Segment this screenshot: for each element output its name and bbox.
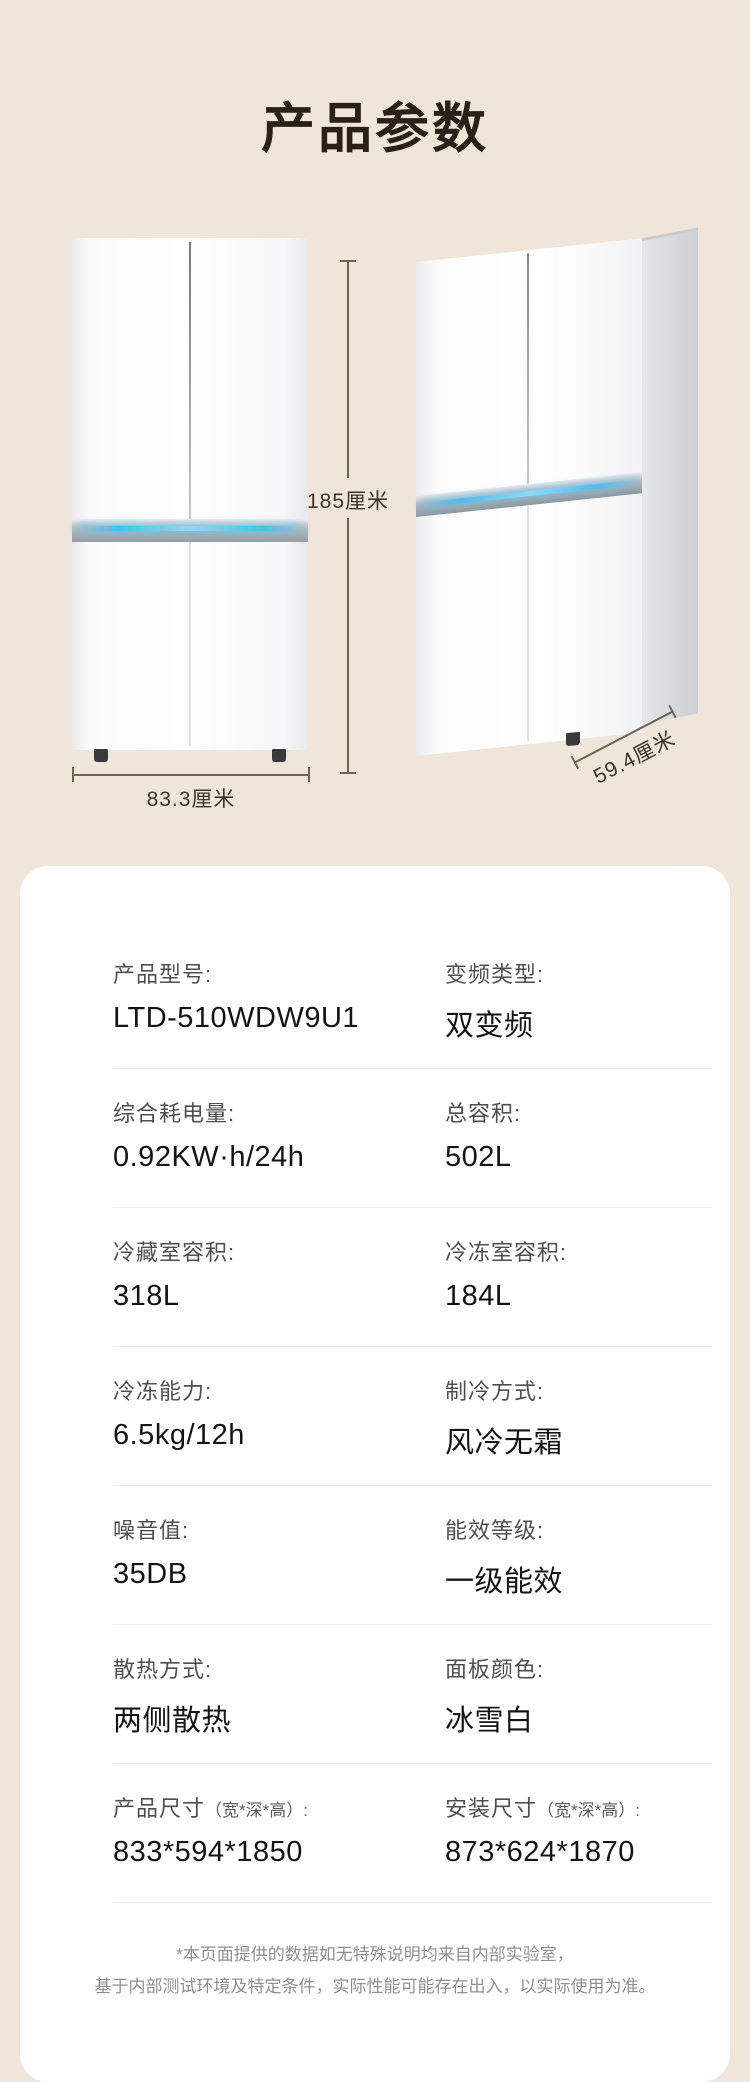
fridge-front-face bbox=[416, 238, 642, 756]
param-value: 35DB bbox=[113, 1558, 189, 1591]
param-label-text: 冷藏室容积: bbox=[113, 1240, 235, 1265]
parameter-rows: 产品型号: LTD-510WDW9U1 变频类型: 双变频 综合耗电量: 0.9… bbox=[20, 930, 730, 1903]
param-label: 产品型号: bbox=[113, 957, 359, 989]
param-label: 产品尺寸（宽*深*高）: bbox=[113, 1791, 308, 1823]
param-value: 6.5kg/12h bbox=[113, 1419, 245, 1452]
height-dimension-line bbox=[347, 262, 349, 478]
fridge-dimension-scene: 185厘米 83.3厘米 59.4厘米 bbox=[0, 0, 750, 830]
fridge-blue-glow bbox=[77, 526, 304, 531]
param-cell: 冷冻能力: 6.5kg/12h bbox=[113, 1374, 245, 1452]
param-row-capacity: 冷藏室容积: 318L 冷冻室容积: 184L bbox=[20, 1208, 730, 1347]
height-dimension-line bbox=[340, 772, 356, 774]
parameters-card: 产品型号: LTD-510WDW9U1 变频类型: 双变频 综合耗电量: 0.9… bbox=[20, 866, 730, 2082]
fridge-door-gap bbox=[527, 253, 529, 484]
param-cell: 能效等级: 一级能效 bbox=[445, 1513, 563, 1600]
width-dimension-line bbox=[72, 774, 310, 776]
fridge-foot bbox=[272, 749, 286, 762]
param-label-sub: （宽*深*高）: bbox=[537, 1801, 640, 1820]
param-cell: 综合耗电量: 0.92KW·h/24h bbox=[113, 1096, 304, 1174]
fridge-side-image bbox=[416, 232, 698, 762]
disclaimer-line-1: *本页面提供的数据如无特殊说明均来自内部实验室， bbox=[20, 1939, 730, 1971]
param-label-text: 冷冻能力: bbox=[113, 1379, 212, 1404]
param-label-text: 变频类型: bbox=[445, 962, 544, 987]
product-parameters-page: 产品参数 185厘米 bbox=[0, 0, 750, 2082]
param-row-model: 产品型号: LTD-510WDW9U1 变频类型: 双变频 bbox=[20, 930, 730, 1069]
param-cell: 安装尺寸（宽*深*高）: 873*624*1870 bbox=[445, 1791, 640, 1869]
param-value: 冰雪白 bbox=[445, 1697, 544, 1739]
height-dimension-line bbox=[347, 518, 349, 772]
param-value: 风冷无霜 bbox=[445, 1419, 563, 1461]
param-label: 噪音值: bbox=[113, 1513, 189, 1545]
param-label: 变频类型: bbox=[445, 957, 544, 989]
param-label: 安装尺寸（宽*深*高）: bbox=[445, 1791, 640, 1823]
param-cell: 总容积: 502L bbox=[445, 1096, 521, 1174]
param-value: 833*594*1850 bbox=[113, 1836, 308, 1869]
param-value: 184L bbox=[445, 1280, 567, 1313]
param-value: LTD-510WDW9U1 bbox=[113, 1002, 359, 1035]
param-label-text: 安装尺寸 bbox=[445, 1796, 537, 1821]
param-label-text: 产品型号: bbox=[113, 962, 212, 987]
param-cell: 面板颜色: 冰雪白 bbox=[445, 1652, 544, 1739]
width-dimension-line bbox=[308, 767, 310, 782]
param-label: 综合耗电量: bbox=[113, 1096, 304, 1128]
param-label: 冷冻室容积: bbox=[445, 1235, 567, 1267]
param-label: 冷藏室容积: bbox=[113, 1235, 235, 1267]
param-label: 制冷方式: bbox=[445, 1374, 563, 1406]
param-row-size: 产品尺寸（宽*深*高）: 833*594*1850 安装尺寸（宽*深*高）: 8… bbox=[20, 1764, 730, 1903]
fridge-door-gap bbox=[189, 242, 191, 519]
param-cell: 变频类型: 双变频 bbox=[445, 957, 544, 1044]
fridge-door-gap bbox=[527, 505, 529, 741]
width-dimension-label: 83.3厘米 bbox=[72, 783, 310, 813]
fridge-light-band bbox=[416, 472, 642, 517]
height-dimension-label: 185厘米 bbox=[288, 485, 408, 515]
fridge-light-band bbox=[72, 519, 308, 542]
fridge-front-image bbox=[72, 238, 308, 750]
param-row-power: 综合耗电量: 0.92KW·h/24h 总容积: 502L bbox=[20, 1069, 730, 1208]
param-row-noise: 噪音值: 35DB 能效等级: 一级能效 bbox=[20, 1486, 730, 1625]
param-value: 0.92KW·h/24h bbox=[113, 1141, 304, 1174]
param-label: 能效等级: bbox=[445, 1513, 563, 1545]
param-label-text: 能效等级: bbox=[445, 1518, 544, 1543]
fridge-foot bbox=[94, 749, 108, 762]
disclaimer-line-2: 基于内部测试环境及特定条件，实际性能可能存在出入，以实际使用为准。 bbox=[20, 1971, 730, 2003]
fridge-foot bbox=[566, 732, 580, 746]
param-label-text: 散热方式: bbox=[113, 1657, 212, 1682]
param-value: 873*624*1870 bbox=[445, 1836, 640, 1869]
disclaimer-text: *本页面提供的数据如无特殊说明均来自内部实验室， 基于内部测试环境及特定条件，实… bbox=[20, 1939, 730, 2003]
param-cell: 冷冻室容积: 184L bbox=[445, 1235, 567, 1313]
param-label-text: 制冷方式: bbox=[445, 1379, 544, 1404]
param-value: 两侧散热 bbox=[113, 1697, 231, 1739]
fridge-blue-glow bbox=[421, 480, 638, 508]
param-label-text: 总容积: bbox=[445, 1101, 521, 1126]
param-cell: 散热方式: 两侧散热 bbox=[113, 1652, 231, 1739]
param-label: 散热方式: bbox=[113, 1652, 231, 1684]
param-label: 总容积: bbox=[445, 1096, 521, 1128]
param-cell: 产品型号: LTD-510WDW9U1 bbox=[113, 957, 359, 1035]
param-row-freezing: 冷冻能力: 6.5kg/12h 制冷方式: 风冷无霜 bbox=[20, 1347, 730, 1486]
param-label-text: 噪音值: bbox=[113, 1518, 189, 1543]
param-label-text: 综合耗电量: bbox=[113, 1101, 235, 1126]
fridge-door-gap bbox=[189, 542, 191, 746]
param-cell: 制冷方式: 风冷无霜 bbox=[445, 1374, 563, 1461]
param-label-text: 产品尺寸 bbox=[113, 1796, 205, 1821]
param-label: 冷冻能力: bbox=[113, 1374, 245, 1406]
param-label-text: 面板颜色: bbox=[445, 1657, 544, 1682]
fridge-side-panel bbox=[642, 227, 698, 724]
param-cell: 产品尺寸（宽*深*高）: 833*594*1850 bbox=[113, 1791, 308, 1869]
param-value: 502L bbox=[445, 1141, 521, 1174]
param-label-sub: （宽*深*高）: bbox=[205, 1801, 308, 1820]
param-value: 一级能效 bbox=[445, 1558, 563, 1600]
param-label-text: 冷冻室容积: bbox=[445, 1240, 567, 1265]
param-value: 318L bbox=[113, 1280, 235, 1313]
param-value: 双变频 bbox=[445, 1002, 544, 1044]
param-cell: 冷藏室容积: 318L bbox=[113, 1235, 235, 1313]
param-label: 面板颜色: bbox=[445, 1652, 544, 1684]
param-row-cooling: 散热方式: 两侧散热 面板颜色: 冰雪白 bbox=[20, 1625, 730, 1764]
param-cell: 噪音值: 35DB bbox=[113, 1513, 189, 1591]
